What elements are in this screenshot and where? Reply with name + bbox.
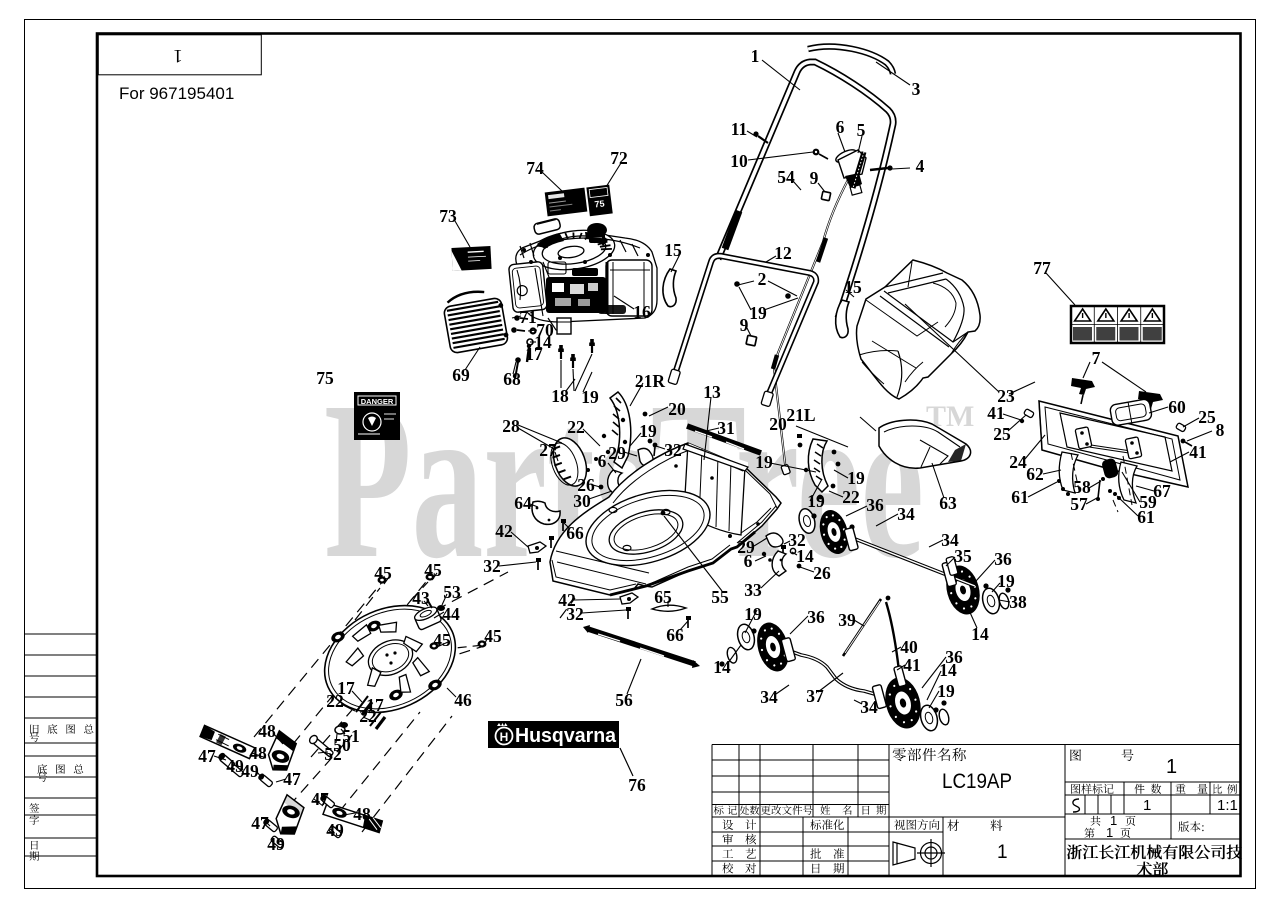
svg-text:71: 71 bbox=[519, 307, 537, 327]
svg-text:17: 17 bbox=[525, 344, 543, 364]
svg-text:29: 29 bbox=[608, 443, 626, 463]
svg-text:14: 14 bbox=[971, 624, 989, 644]
svg-text:36: 36 bbox=[866, 495, 884, 515]
svg-text:1:1: 1:1 bbox=[1217, 797, 1238, 814]
svg-text:36: 36 bbox=[994, 549, 1012, 569]
svg-text:9: 9 bbox=[810, 168, 819, 188]
svg-text:67: 67 bbox=[1153, 481, 1171, 501]
svg-text:36: 36 bbox=[807, 607, 825, 627]
svg-text:Husqvarna: Husqvarna bbox=[515, 725, 617, 747]
svg-text:13: 13 bbox=[703, 382, 721, 402]
svg-text:40: 40 bbox=[900, 637, 918, 657]
svg-text:9: 9 bbox=[740, 315, 749, 335]
svg-text:45: 45 bbox=[374, 563, 392, 583]
svg-text:19: 19 bbox=[807, 491, 825, 511]
svg-text:68: 68 bbox=[503, 369, 521, 389]
svg-text:57: 57 bbox=[1070, 494, 1088, 514]
svg-text:76: 76 bbox=[628, 775, 646, 795]
svg-text:34: 34 bbox=[941, 530, 959, 550]
svg-text:10: 10 bbox=[730, 151, 748, 171]
svg-text:47: 47 bbox=[283, 769, 301, 789]
svg-text:1: 1 bbox=[1143, 797, 1151, 814]
svg-text:25: 25 bbox=[993, 424, 1011, 444]
svg-text:27: 27 bbox=[539, 440, 557, 460]
svg-text:38: 38 bbox=[1009, 592, 1027, 612]
svg-text:14: 14 bbox=[939, 660, 957, 680]
svg-text:22: 22 bbox=[567, 417, 585, 437]
svg-text:75: 75 bbox=[316, 368, 334, 388]
svg-text:52: 52 bbox=[324, 744, 342, 764]
svg-text:45: 45 bbox=[424, 560, 442, 580]
svg-text:43: 43 bbox=[412, 588, 430, 608]
svg-text:24: 24 bbox=[1009, 452, 1027, 472]
svg-text:66: 66 bbox=[566, 523, 584, 543]
svg-text:44: 44 bbox=[442, 604, 460, 624]
svg-text:15: 15 bbox=[844, 277, 862, 297]
svg-text:19: 19 bbox=[744, 604, 762, 624]
svg-text:3: 3 bbox=[912, 79, 921, 99]
svg-text:11: 11 bbox=[731, 119, 748, 139]
svg-text:19: 19 bbox=[749, 303, 767, 323]
svg-text:1: 1 bbox=[997, 842, 1008, 863]
svg-text:1: 1 bbox=[751, 46, 760, 66]
svg-text:34: 34 bbox=[760, 687, 778, 707]
svg-text:55: 55 bbox=[711, 587, 729, 607]
svg-text:22: 22 bbox=[326, 691, 344, 711]
svg-text:19: 19 bbox=[937, 681, 955, 701]
svg-text:69: 69 bbox=[452, 365, 470, 385]
svg-text:47: 47 bbox=[311, 789, 329, 809]
svg-text:1: 1 bbox=[1166, 756, 1177, 778]
svg-text:49: 49 bbox=[241, 761, 259, 781]
svg-text:18: 18 bbox=[551, 386, 569, 406]
svg-text:48: 48 bbox=[353, 804, 371, 824]
svg-text:19: 19 bbox=[847, 468, 865, 488]
svg-text:48: 48 bbox=[249, 743, 267, 763]
svg-text:64: 64 bbox=[514, 493, 532, 513]
svg-text:15: 15 bbox=[664, 240, 682, 260]
svg-text:62: 62 bbox=[1026, 464, 1044, 484]
svg-text:60: 60 bbox=[1168, 397, 1186, 417]
svg-text:12: 12 bbox=[774, 243, 792, 263]
svg-text:30: 30 bbox=[573, 491, 591, 511]
svg-text:34: 34 bbox=[897, 504, 915, 524]
svg-text:63: 63 bbox=[939, 493, 957, 513]
svg-text:LC19AP: LC19AP bbox=[942, 770, 1012, 793]
svg-text:65: 65 bbox=[654, 587, 672, 607]
svg-text:6: 6 bbox=[598, 451, 607, 471]
svg-text:47: 47 bbox=[251, 813, 269, 833]
svg-text:56: 56 bbox=[615, 690, 633, 710]
svg-text:4: 4 bbox=[916, 156, 925, 176]
svg-text:5: 5 bbox=[857, 120, 866, 140]
svg-text:1: 1 bbox=[173, 45, 183, 66]
svg-text:72: 72 bbox=[610, 148, 628, 168]
svg-text:19: 19 bbox=[639, 421, 657, 441]
svg-text:28: 28 bbox=[502, 416, 520, 436]
svg-text:22: 22 bbox=[359, 706, 377, 726]
svg-text:32: 32 bbox=[664, 440, 682, 460]
svg-text:14: 14 bbox=[796, 546, 814, 566]
svg-text:47: 47 bbox=[198, 746, 216, 766]
svg-text:22: 22 bbox=[842, 487, 860, 507]
svg-text:32: 32 bbox=[483, 556, 501, 576]
svg-text:66: 66 bbox=[666, 625, 684, 645]
svg-text:2: 2 bbox=[758, 269, 767, 289]
svg-text:For 967195401: For 967195401 bbox=[119, 84, 234, 103]
svg-text:20: 20 bbox=[668, 399, 686, 419]
svg-text:41: 41 bbox=[903, 655, 921, 675]
svg-text:DANGER: DANGER bbox=[361, 397, 394, 406]
svg-text:34: 34 bbox=[860, 697, 878, 717]
svg-text:41: 41 bbox=[987, 403, 1005, 423]
svg-text:16: 16 bbox=[633, 302, 651, 322]
svg-text:H: H bbox=[500, 730, 509, 744]
svg-text:1: 1 bbox=[1106, 825, 1113, 840]
svg-text:26: 26 bbox=[813, 563, 831, 583]
svg-text:77: 77 bbox=[1033, 258, 1051, 278]
svg-text:74: 74 bbox=[526, 158, 544, 178]
svg-text:19: 19 bbox=[755, 452, 773, 472]
svg-text:19: 19 bbox=[581, 387, 599, 407]
svg-text:49: 49 bbox=[267, 834, 285, 854]
svg-text:37: 37 bbox=[806, 686, 824, 706]
svg-text:39: 39 bbox=[838, 610, 856, 630]
svg-text:20: 20 bbox=[769, 414, 787, 434]
svg-text:45: 45 bbox=[484, 626, 502, 646]
svg-text:45: 45 bbox=[433, 630, 451, 650]
svg-text:6: 6 bbox=[836, 117, 845, 137]
svg-text:61: 61 bbox=[1011, 487, 1029, 507]
svg-text:42: 42 bbox=[495, 521, 513, 541]
svg-text:19: 19 bbox=[997, 571, 1015, 591]
svg-text:25: 25 bbox=[1198, 407, 1216, 427]
svg-text:46: 46 bbox=[454, 690, 472, 710]
svg-text:31: 31 bbox=[717, 418, 735, 438]
svg-text:48: 48 bbox=[258, 721, 276, 741]
svg-text:8: 8 bbox=[1216, 420, 1225, 440]
svg-text:49: 49 bbox=[326, 820, 344, 840]
svg-text:14: 14 bbox=[713, 657, 731, 677]
svg-text:21R: 21R bbox=[635, 371, 666, 391]
svg-text:33: 33 bbox=[744, 580, 762, 600]
svg-text:53: 53 bbox=[443, 582, 461, 602]
svg-text:75: 75 bbox=[594, 198, 605, 209]
svg-text:61: 61 bbox=[1137, 507, 1155, 527]
svg-text:41: 41 bbox=[1189, 442, 1207, 462]
svg-text:21L: 21L bbox=[786, 405, 815, 425]
svg-text:32: 32 bbox=[566, 604, 584, 624]
svg-text:73: 73 bbox=[439, 206, 457, 226]
svg-text:54: 54 bbox=[777, 167, 795, 187]
svg-text:6: 6 bbox=[744, 551, 753, 571]
svg-text:7: 7 bbox=[1092, 348, 1101, 368]
